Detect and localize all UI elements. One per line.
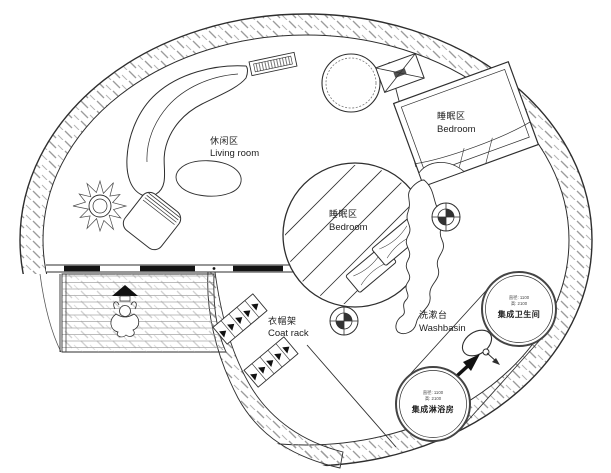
armchair: [120, 189, 185, 254]
column-dot: [213, 267, 216, 270]
bathroom-pod: 直径: 1100 高: 2100 集成卫生间: [482, 272, 556, 346]
living-room-label-en: Living room: [210, 148, 259, 159]
bedroom-center-label-zh: 睡眠区: [329, 208, 358, 219]
plant: [73, 181, 126, 231]
coffee-table: [176, 161, 241, 196]
shower-pod-name: 集成淋浴房: [411, 404, 455, 414]
bathroom-pod-name: 集成卫生间: [497, 309, 541, 319]
bathroom-pod-height: 高: 2100: [511, 300, 528, 307]
round-table: [322, 54, 380, 112]
terrace-wall: [46, 265, 312, 272]
floor-plan-drawing: 直径: 1100 高: 2100 集成卫生间 直径: 1100 高: 2100 …: [0, 0, 611, 473]
washbasin-label-zh: 洗漱台: [419, 309, 448, 320]
living-room-label-zh: 休闲区: [210, 135, 239, 146]
crosshair-marker-icon: [330, 307, 358, 335]
bathroom-pod-diameter: 直径: 1100: [509, 294, 530, 300]
floor-plan-canvas: 直径: 1100 高: 2100 集成卫生间 直径: 1100 高: 2100 …: [0, 0, 611, 473]
washbasin-label-en: Washbasin: [419, 323, 466, 334]
bench: [249, 52, 297, 75]
terrace-deck: [60, 274, 226, 352]
coat-rack-unit: [244, 337, 298, 387]
coat-rack-label-en: Coat rack: [268, 328, 309, 339]
bedroom-right-label-zh: 睡眠区: [437, 110, 466, 121]
shower-pod-height: 高: 2100: [425, 395, 442, 402]
glazing-bars: [64, 266, 283, 271]
crosshair-marker-icon: [432, 203, 460, 231]
coat-rack-label-zh: 衣帽架: [268, 315, 297, 326]
equipment-box-icon: [376, 54, 424, 93]
shower-pod: 直径: 1100 高: 2100 集成淋浴房: [396, 367, 470, 441]
bedroom-right-label-en: Bedroom: [437, 124, 476, 135]
shower-pod-diameter: 直径: 1100: [423, 389, 444, 395]
partition-line-closet: [307, 345, 396, 447]
bedroom-center-label-en: Bedroom: [329, 222, 368, 233]
